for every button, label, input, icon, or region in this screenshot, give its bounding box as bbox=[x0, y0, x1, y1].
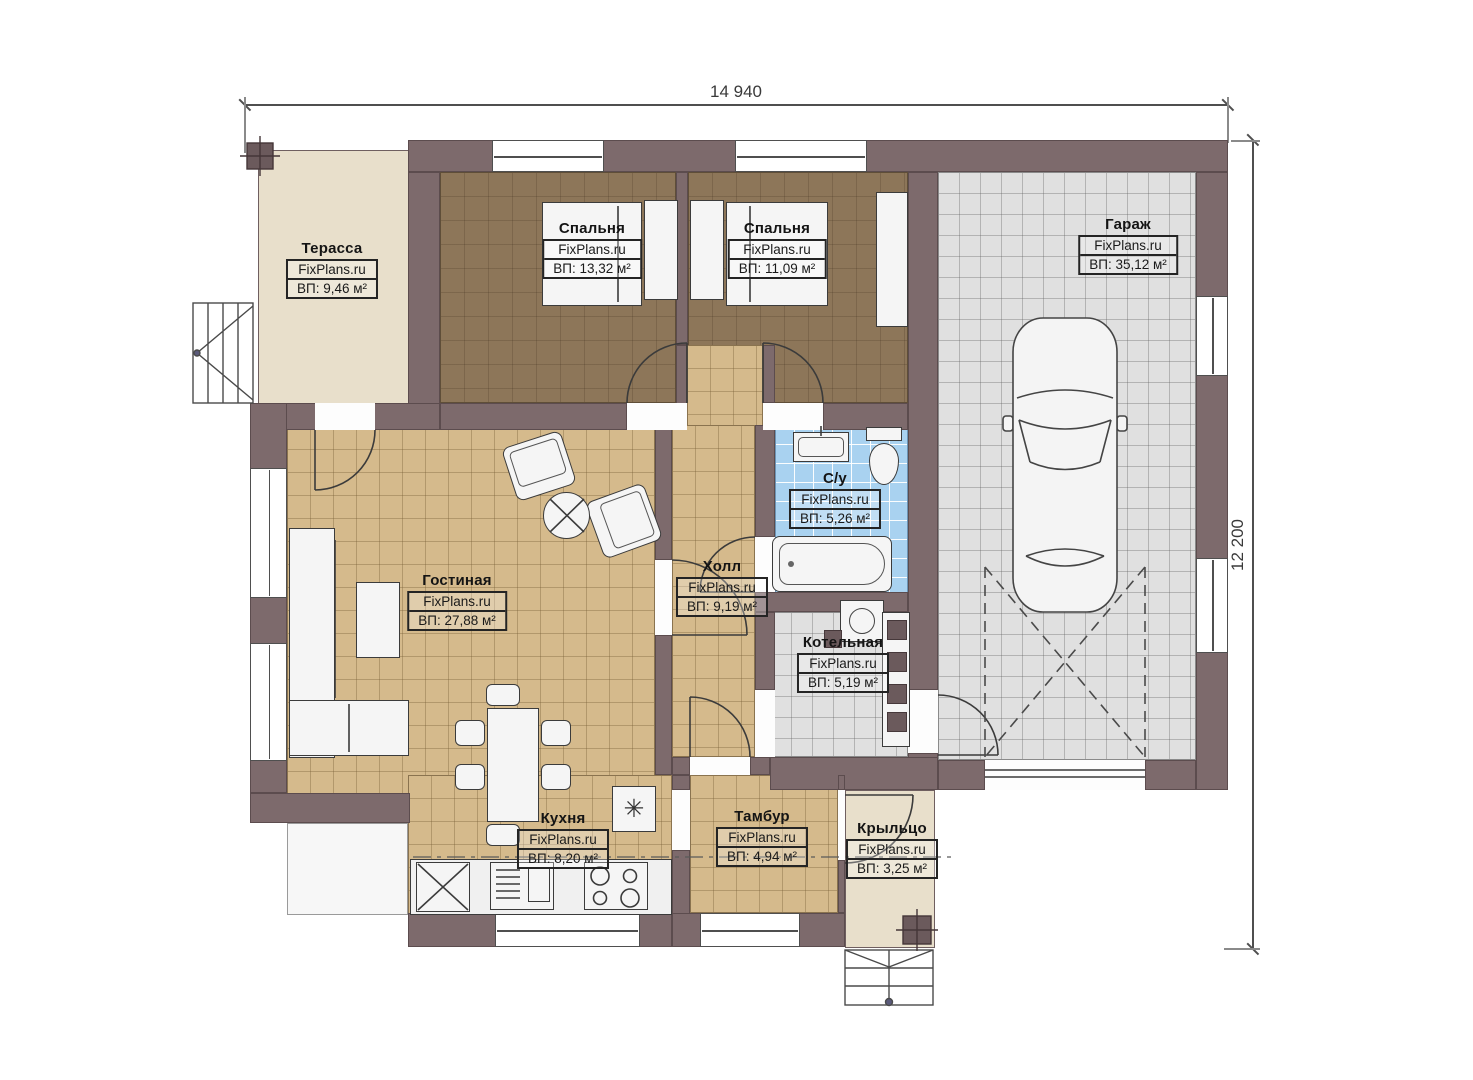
extension-line bbox=[1224, 948, 1260, 950]
door-opening bbox=[627, 403, 687, 430]
wall bbox=[770, 757, 938, 790]
room-name: Гостиная bbox=[407, 572, 507, 589]
brand-watermark: FixPlans.ru bbox=[409, 593, 505, 612]
wall bbox=[672, 757, 690, 775]
room-name: Спальня bbox=[542, 220, 642, 237]
stove bbox=[584, 862, 648, 910]
room-area: ВП: 3,25 м² bbox=[848, 860, 936, 877]
wall bbox=[823, 403, 908, 430]
room-name: Котельная bbox=[797, 634, 889, 651]
chair bbox=[455, 764, 485, 790]
boiler-device bbox=[887, 652, 907, 672]
fridge-symbol: ✳ bbox=[612, 786, 656, 832]
door-opening bbox=[315, 403, 375, 430]
room-label-terrace: Терасса FixPlans.ru ВП: 9,46 м² bbox=[286, 240, 378, 299]
room-area: ВП: 11,09 м² bbox=[730, 260, 825, 277]
wardrobe bbox=[690, 200, 724, 300]
kitchen-cabinet bbox=[416, 862, 470, 912]
room-label-vestibule: Тамбур FixPlans.ru ВП: 4,94 м² bbox=[716, 808, 808, 867]
sofa-seat bbox=[289, 700, 409, 756]
room-label-porch: Крыльцо FixPlans.ru ВП: 3,25 м² bbox=[846, 820, 938, 879]
wall bbox=[763, 345, 775, 403]
wall bbox=[655, 635, 672, 775]
dining-table bbox=[487, 708, 539, 822]
boiler-device bbox=[887, 712, 907, 732]
porch-steps bbox=[845, 950, 933, 1006]
wall bbox=[408, 172, 440, 405]
room-label-garage: Гараж FixPlans.ru ВП: 35,12 м² bbox=[1078, 216, 1178, 275]
door-opening bbox=[655, 560, 672, 635]
room-label-bedroom-2: Спальня FixPlans.ru ВП: 11,09 м² bbox=[728, 220, 827, 279]
room-label-bedroom-1: Спальня FixPlans.ru ВП: 13,32 м² bbox=[542, 220, 642, 279]
brand-watermark: FixPlans.ru bbox=[730, 241, 825, 260]
room-area: ВП: 8,20 м² bbox=[519, 850, 607, 867]
wall bbox=[750, 757, 770, 775]
dimension-width-label: 14 940 bbox=[710, 82, 762, 102]
dimension-height-label: 12 200 bbox=[1228, 519, 1248, 571]
room-name: Гараж bbox=[1078, 216, 1178, 233]
room-info-box: FixPlans.ru ВП: 27,88 м² bbox=[407, 591, 507, 631]
room-info-box: FixPlans.ru ВП: 11,09 м² bbox=[728, 239, 827, 279]
garage-door-opening bbox=[985, 760, 1145, 790]
wardrobe bbox=[644, 200, 678, 300]
window bbox=[492, 140, 604, 172]
wall bbox=[1196, 172, 1228, 790]
room-name: Холл bbox=[676, 558, 768, 575]
room-name: Терасса bbox=[286, 240, 378, 257]
chair bbox=[486, 684, 520, 706]
wall bbox=[838, 775, 845, 790]
room-info-box: FixPlans.ru ВП: 5,26 м² bbox=[789, 489, 881, 529]
wall bbox=[250, 793, 410, 823]
coffee-table bbox=[543, 492, 590, 539]
wall bbox=[755, 425, 775, 537]
wardrobe bbox=[876, 192, 908, 327]
extension-line bbox=[1231, 140, 1260, 142]
room-label-hall: Холл FixPlans.ru ВП: 9,19 м² bbox=[676, 558, 768, 617]
room-label-boiler-room: Котельная FixPlans.ru ВП: 5,19 м² bbox=[797, 634, 889, 693]
window bbox=[1196, 558, 1228, 653]
wall bbox=[838, 860, 845, 913]
door-opening bbox=[755, 690, 775, 757]
brand-watermark: FixPlans.ru bbox=[791, 491, 879, 510]
door-opening bbox=[838, 790, 845, 860]
floor-plan-canvas: 14 940 12 200 bbox=[0, 0, 1473, 1080]
floor-kitchen-corner bbox=[287, 823, 408, 915]
room-area: ВП: 35,12 м² bbox=[1080, 256, 1176, 273]
door-opening bbox=[690, 757, 750, 775]
sink-basin bbox=[528, 868, 550, 902]
terrace-steps bbox=[193, 303, 253, 403]
brand-watermark: FixPlans.ru bbox=[799, 655, 887, 674]
room-info-box: FixPlans.ru ВП: 5,19 м² bbox=[797, 653, 889, 693]
dimension-width-line bbox=[245, 104, 1228, 106]
room-info-box: FixPlans.ru ВП: 35,12 м² bbox=[1078, 235, 1178, 275]
window bbox=[495, 913, 640, 947]
room-area: ВП: 5,26 м² bbox=[791, 510, 879, 527]
brand-watermark: FixPlans.ru bbox=[519, 831, 607, 850]
room-area: ВП: 9,19 м² bbox=[678, 598, 766, 615]
boiler-device bbox=[887, 684, 907, 704]
room-name: С/у bbox=[789, 470, 881, 487]
extension-line bbox=[1227, 97, 1229, 143]
brand-watermark: FixPlans.ru bbox=[678, 579, 766, 598]
room-area: ВП: 27,88 м² bbox=[409, 612, 505, 629]
room-label-living-room: Гостиная FixPlans.ru ВП: 27,88 м² bbox=[407, 572, 507, 631]
room-info-box: FixPlans.ru ВП: 13,32 м² bbox=[542, 239, 642, 279]
brand-watermark: FixPlans.ru bbox=[288, 261, 376, 280]
wall bbox=[755, 592, 908, 612]
room-area: ВП: 4,94 м² bbox=[718, 848, 806, 865]
brand-watermark: FixPlans.ru bbox=[718, 829, 806, 848]
door-opening bbox=[672, 790, 690, 850]
extension-line bbox=[244, 97, 246, 153]
room-info-box: FixPlans.ru ВП: 3,25 м² bbox=[846, 839, 938, 879]
door-opening bbox=[763, 403, 823, 430]
toilet-tank bbox=[866, 427, 902, 441]
fridge-glyph: ✳ bbox=[624, 794, 645, 824]
room-info-box: FixPlans.ru ВП: 9,46 м² bbox=[286, 259, 378, 299]
wall bbox=[440, 403, 627, 430]
wall bbox=[938, 760, 985, 790]
brand-watermark: FixPlans.ru bbox=[544, 241, 640, 260]
wall bbox=[908, 172, 938, 690]
room-info-box: FixPlans.ru ВП: 8,20 м² bbox=[517, 829, 609, 869]
dimension-height-line bbox=[1252, 140, 1254, 950]
window bbox=[735, 140, 867, 172]
room-name: Кухня bbox=[517, 810, 609, 827]
brand-watermark: FixPlans.ru bbox=[848, 841, 936, 860]
window bbox=[250, 468, 287, 598]
bathtub bbox=[772, 536, 892, 592]
room-name: Крыльцо bbox=[846, 820, 938, 837]
bathroom-sink bbox=[793, 432, 849, 462]
room-area: ВП: 13,32 м² bbox=[544, 260, 640, 277]
window bbox=[700, 913, 800, 947]
room-name: Тамбур bbox=[716, 808, 808, 825]
room-info-box: FixPlans.ru ВП: 4,94 м² bbox=[716, 827, 808, 867]
room-area: ВП: 5,19 м² bbox=[799, 674, 887, 691]
window bbox=[1196, 296, 1228, 376]
floor-hall-stub bbox=[687, 345, 763, 430]
chair bbox=[455, 720, 485, 746]
door-opening bbox=[908, 690, 938, 753]
wall bbox=[1145, 760, 1196, 790]
room-name: Спальня bbox=[728, 220, 827, 237]
chair bbox=[541, 720, 571, 746]
tv-cabinet bbox=[356, 582, 400, 658]
room-label-kitchen: Кухня FixPlans.ru ВП: 8,20 м² bbox=[517, 810, 609, 869]
room-info-box: FixPlans.ru ВП: 9,19 м² bbox=[676, 577, 768, 617]
boiler-device bbox=[887, 620, 907, 640]
room-area: ВП: 9,46 м² bbox=[288, 280, 376, 297]
chair bbox=[541, 764, 571, 790]
window bbox=[250, 643, 287, 761]
wall bbox=[672, 775, 690, 790]
wall bbox=[755, 612, 775, 690]
chair bbox=[486, 824, 520, 846]
brand-watermark: FixPlans.ru bbox=[1080, 237, 1176, 256]
room-label-bathroom: С/у FixPlans.ru ВП: 5,26 м² bbox=[789, 470, 881, 529]
